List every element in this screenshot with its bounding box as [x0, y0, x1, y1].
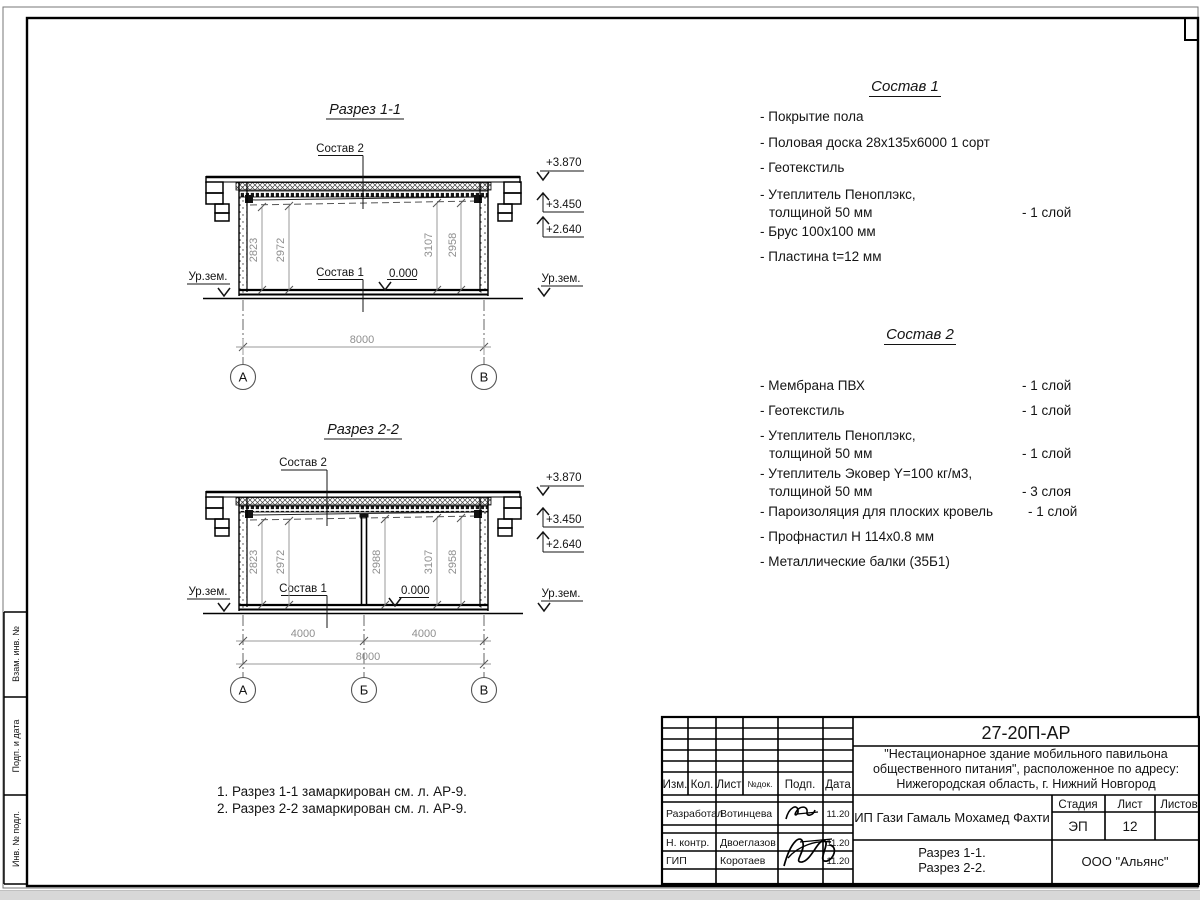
col-ndok: №док.: [748, 779, 773, 789]
sheet-title-line-1: Разрез 1-1.: [918, 845, 985, 860]
zero-elevation: 0.000: [389, 268, 418, 280]
elev-2640: +2.640: [546, 539, 582, 551]
material-item: - Геотекстиль- 1 слой: [760, 404, 1200, 418]
client-name: ИП Гази Гамаль Мохамед Фахти: [854, 810, 1050, 825]
margin-label-vzam: Взам. инв. №: [11, 626, 21, 682]
axis-bubbles: А Б В: [231, 678, 497, 703]
notes: 1. Разрез 1-1 замаркирован см. л. АР-9. …: [217, 783, 467, 817]
margin-label-inv: Инв. № подл.: [11, 811, 21, 867]
sostav2-label: Состав 2: [316, 143, 364, 155]
note-2: 2. Разрез 2-2 замаркирован см. л. АР-9.: [217, 800, 467, 817]
material-item: - Брус 100х100 мм: [760, 225, 1200, 239]
elev-3450: +3.450: [546, 514, 582, 526]
material-item: - Металлические балки (35Б1): [760, 555, 1200, 569]
material-item: - Мембрана ПВХ- 1 слой: [760, 379, 1200, 393]
dim-4000-right: 4000: [412, 628, 436, 640]
dim-8000: 8000: [356, 651, 380, 663]
company-name: ООО "Альянс": [1082, 854, 1169, 869]
dim-2972: 2972: [275, 550, 287, 574]
row-developer-name: Вотинцева: [720, 808, 772, 820]
bottom-edge-strip: [0, 890, 1200, 900]
ground-level-left: Ур.зем.: [188, 271, 227, 283]
material-item: - Покрытие пола: [760, 110, 1200, 124]
axis-A: А: [239, 683, 248, 698]
col-list: Лист: [717, 779, 743, 791]
material-item: - Половая доска 28х135х6000 1 сорт: [760, 136, 1200, 150]
row-gip-role: ГИП: [666, 855, 687, 867]
composition-2-title: Состав 2: [760, 326, 1080, 343]
cornice-bracket-right: [498, 182, 521, 221]
dim-2823: 2823: [248, 238, 260, 262]
dim-2988: 2988: [371, 550, 383, 574]
material-item: - Пластина t=12 мм: [760, 250, 1200, 264]
axis-B: Б: [360, 683, 369, 698]
axis-bubbles: А В: [231, 365, 497, 390]
material-item: - Утеплитель Эковер Y=100 кг/м3,толщиной…: [760, 467, 1200, 498]
sostav1-label: Состав 1: [279, 583, 327, 595]
title-block: Изм. Кол. Лист №док. Подп. Дата Разработ…: [662, 717, 1199, 884]
note-1: 1. Разрез 1-1 замаркирован см. л. АР-9.: [217, 783, 467, 800]
axis-B: В: [480, 370, 489, 385]
dim-3107: 3107: [423, 550, 435, 574]
dim-2958: 2958: [447, 550, 459, 574]
stage-col: Стадия: [1058, 799, 1097, 811]
zero-elevation: 0.000: [401, 585, 430, 597]
axis-A: А: [239, 370, 248, 385]
section-2-2-title: Разрез 2-2: [327, 422, 399, 438]
elev-3450: +3.450: [546, 199, 582, 211]
row-ncontr-role: Н. контр.: [666, 837, 709, 849]
project-line-3: Нижегородская область, г. Нижний Новгоро…: [896, 777, 1156, 791]
ground-level-right: Ур.зем.: [541, 588, 580, 600]
sostav2-label: Состав 2: [279, 457, 327, 469]
composition-1-title: Состав 1: [745, 78, 1065, 95]
ground-level-left: Ур.зем.: [188, 586, 227, 598]
section-2-2: Разрез 2-2: [187, 422, 584, 703]
section-1-1: Разрез 1-1: [187, 102, 584, 390]
sheets-col: Листов: [1160, 799, 1197, 811]
row-developer-date: 11.20: [826, 809, 849, 820]
row-ncontr-name: Двоеглазов: [720, 837, 776, 849]
dim-3107: 3107: [423, 233, 435, 257]
ground-level-right: Ур.зем.: [541, 273, 580, 285]
sostav1-label: Состав 1: [316, 267, 364, 279]
elev-3870: +3.870: [546, 472, 582, 484]
sheet-number: 12: [1122, 819, 1137, 834]
dim-2972: 2972: [275, 238, 287, 262]
row-gip-date: 11.20: [826, 856, 849, 867]
sheet-title-line-2: Разрез 2-2.: [918, 860, 985, 875]
doc-code: 27-20П-АР: [982, 723, 1071, 743]
section-1-1-title: Разрез 1-1: [329, 102, 401, 118]
axis-V: В: [480, 683, 489, 698]
sheet-col: Лист: [1118, 799, 1144, 811]
middle-column: [360, 514, 369, 605]
material-item: - Пароизоляция для плоских кровель- 1 сл…: [760, 505, 1200, 519]
material-item: - Профнастил Н 114х0.8 мм: [760, 530, 1200, 544]
dim-4000-left: 4000: [291, 628, 315, 640]
cornice-bracket-right: [498, 497, 521, 536]
drawing-sheet: Взам. инв. № Подп. и дата Инв. № подл. Р…: [0, 0, 1200, 900]
cornice-bracket-left: [206, 182, 229, 221]
col-data: Дата: [825, 779, 851, 791]
col-kol: Кол.: [691, 779, 714, 791]
row-developer-role: Разработал: [666, 808, 723, 820]
dim-2823: 2823: [248, 550, 260, 574]
dim-8000: 8000: [350, 334, 374, 346]
stage-value: ЭП: [1068, 819, 1087, 834]
row-gip-name: Коротаев: [720, 855, 766, 867]
material-item: - Утеплитель Пеноплэкс,толщиной 50 мм- 1…: [760, 188, 1200, 219]
elev-2640: +2.640: [546, 224, 582, 236]
col-izm: Изм.: [663, 779, 688, 791]
dim-2958: 2958: [447, 233, 459, 257]
span-dimensions: 4000 4000 8000: [236, 615, 491, 677]
project-line-2: общественного питания", расположенное по…: [873, 762, 1179, 776]
elevation-marks: +3.870 +3.450 +2.640: [537, 157, 584, 237]
material-item: - Геотекстиль: [760, 161, 1200, 175]
elev-3870: +3.870: [546, 157, 582, 169]
margin-label-podp: Подп. и дата: [11, 719, 21, 772]
project-line-1: "Нестационарное здание мобильного павиль…: [884, 747, 1167, 761]
cornice-bracket-left: [206, 497, 229, 536]
material-item: - Утеплитель Пеноплэкс,толщиной 50 мм- 1…: [760, 429, 1200, 460]
col-podp: Подп.: [785, 779, 816, 791]
elevation-marks: +3.870 +3.450 +2.640: [537, 472, 584, 552]
